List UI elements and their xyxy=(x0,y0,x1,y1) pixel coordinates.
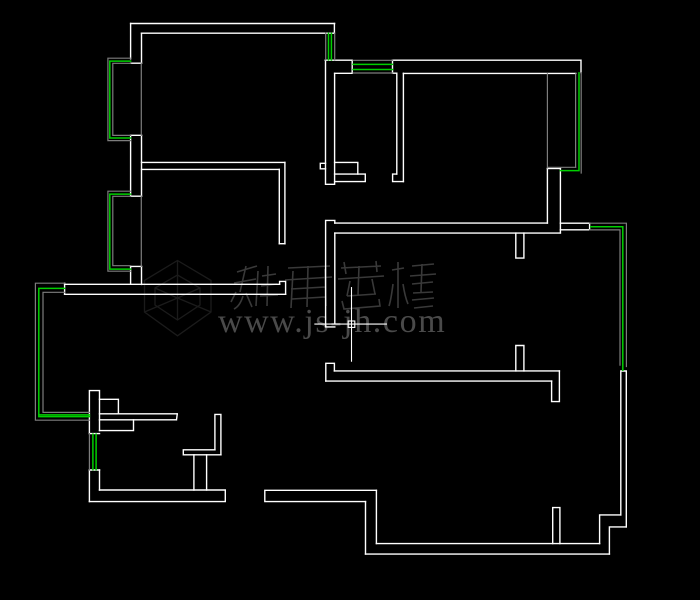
svg-text:www.js-jh.com: www.js-jh.com xyxy=(218,303,446,340)
